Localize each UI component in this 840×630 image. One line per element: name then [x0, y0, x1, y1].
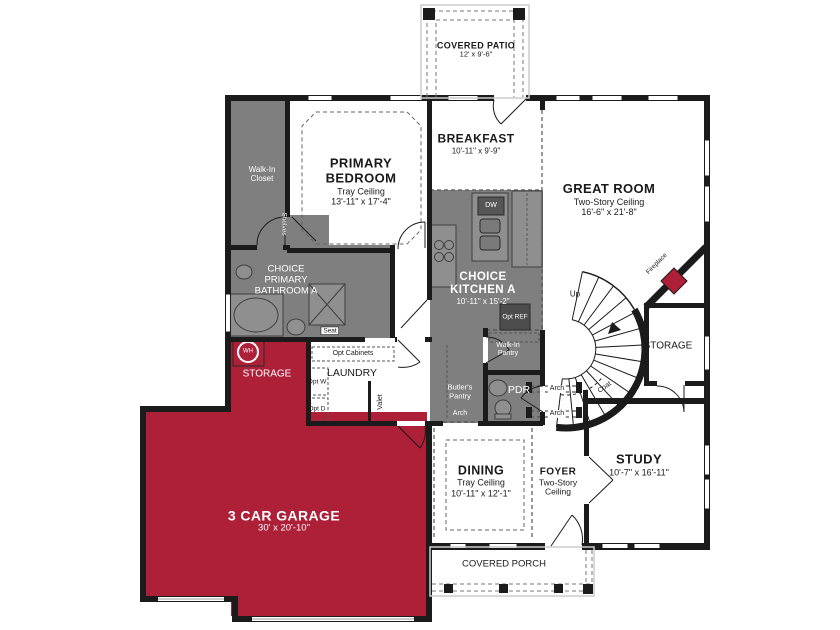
room-name-label: Butler's Pantry	[437, 383, 483, 400]
study-label: STUDY 10'-7" x 16'-11"	[574, 452, 704, 477]
breakfast-label: BREAKFAST 10'-11" x 9'-9"	[411, 133, 541, 156]
room-ceiling-label: Tray Ceiling	[309, 187, 413, 197]
opt-washer-label: Opt W	[307, 378, 327, 385]
room-name-label: BREAKFAST	[411, 133, 541, 147]
sink-basin	[480, 236, 500, 250]
seat-label: Seat	[320, 326, 339, 335]
foyer-arch-upper-label: Arch	[548, 385, 566, 393]
storage-right-label: STORAGE	[644, 340, 693, 352]
opt-dryer-label: Opt D	[307, 405, 327, 412]
room-dims-label: 10'-11" x 12'-1"	[426, 488, 536, 498]
room-dims-label: 30' x 20'-10"	[174, 524, 394, 535]
opt-cabinets-label: Opt Cabinets	[333, 350, 374, 358]
valet-label: Valet	[377, 394, 385, 409]
stairs-up-label: Up	[570, 289, 580, 298]
pdr-sink	[489, 380, 507, 396]
room-name-label: PRIMARY BEDROOM	[309, 157, 413, 187]
primary-bedroom-label: PRIMARY BEDROOM Tray Ceiling 13'-11" x 1…	[309, 157, 413, 208]
room-name-label: CHOICE PRIMARY BATHROOM A	[247, 265, 325, 298]
patio-post	[423, 8, 435, 20]
room-name-label: Walk-In Pantry	[486, 342, 530, 358]
room-name-label: CHOICE KITCHEN A	[433, 271, 533, 297]
porch-post	[444, 584, 453, 593]
sink-basin	[480, 219, 500, 233]
dining-label: DINING Tray Ceiling 10'-11" x 12'-1"	[426, 463, 536, 498]
room-dims-label: 13'-11" x 17'-4"	[309, 197, 413, 207]
tub	[234, 298, 278, 332]
room-dims-label: 10'-11" x 9'-9"	[411, 146, 541, 155]
room-dims-label: 16'-6" x 21'-8"	[539, 207, 679, 217]
porch-post	[554, 584, 563, 593]
room-ceiling-label: Tray Ceiling	[426, 478, 536, 488]
walk-in-closet-label: Walk-In Closet	[237, 165, 287, 183]
garage-label: 3 CAR GARAGE 30' x 20'-10"	[174, 507, 394, 534]
butlers-arch-label: Arch	[453, 410, 467, 418]
covered-patio-label: COVERED PATIO 12' x 9'-6"	[433, 41, 519, 60]
floor-plan: COVERED PATIO 12' x 9'-6" PRIMARY BEDROO…	[0, 0, 840, 630]
stairs-direction-arrow	[608, 322, 621, 334]
garage-fill	[146, 340, 427, 616]
room-ceiling-label: Two-Story Ceiling	[530, 478, 586, 498]
porch-post	[499, 584, 508, 593]
floorplan-canvas	[0, 0, 840, 630]
room-dims-label: 10'-7" x 16'-11"	[574, 467, 704, 477]
great-room-label: GREAT ROOM Two-Story Ceiling 16'-6" x 21…	[539, 182, 679, 218]
porch-corner-post	[583, 584, 593, 594]
foyer-arch-lower-label: Arch	[548, 410, 566, 418]
room-ceiling-label: Two-Story Ceiling	[539, 197, 679, 207]
porch-outline	[430, 547, 594, 596]
room-name-label: Walk-In Closet	[237, 165, 287, 183]
walk-in-pantry-label: Walk-In Pantry	[486, 342, 530, 358]
room-dims-label: 12' x 9'-6"	[433, 51, 519, 60]
primary-bathroom-label: CHOICE PRIMARY BATHROOM A	[247, 265, 325, 298]
butlers-pantry-label: Butler's Pantry	[437, 383, 483, 400]
opt-ref-label: Opt REF	[502, 313, 528, 320]
fireplace	[646, 247, 706, 307]
pdr-tank	[495, 414, 511, 419]
laundry-label: LAUNDRY	[327, 367, 377, 379]
toilet	[287, 319, 305, 335]
powder-room-label: PDR	[508, 384, 530, 396]
shelves-label: Shelves	[280, 212, 287, 235]
room-name-label: DINING	[426, 463, 536, 477]
covered-porch-label: COVERED PORCH	[462, 560, 546, 571]
room-name-label: GREAT ROOM	[539, 182, 679, 197]
room-name-label: 3 CAR GARAGE	[174, 507, 394, 523]
storage-left-label: STORAGE	[243, 368, 292, 380]
room-dims-label: 10'-11" x 15'-2"	[433, 298, 533, 307]
water-heater-label: WH	[243, 349, 253, 356]
patio-post	[513, 8, 525, 20]
room-name-label: STUDY	[574, 452, 704, 467]
kitchen-label: CHOICE KITCHEN A 10'-11" x 15'-2"	[433, 271, 533, 307]
dishwasher-label: DW	[485, 202, 497, 210]
